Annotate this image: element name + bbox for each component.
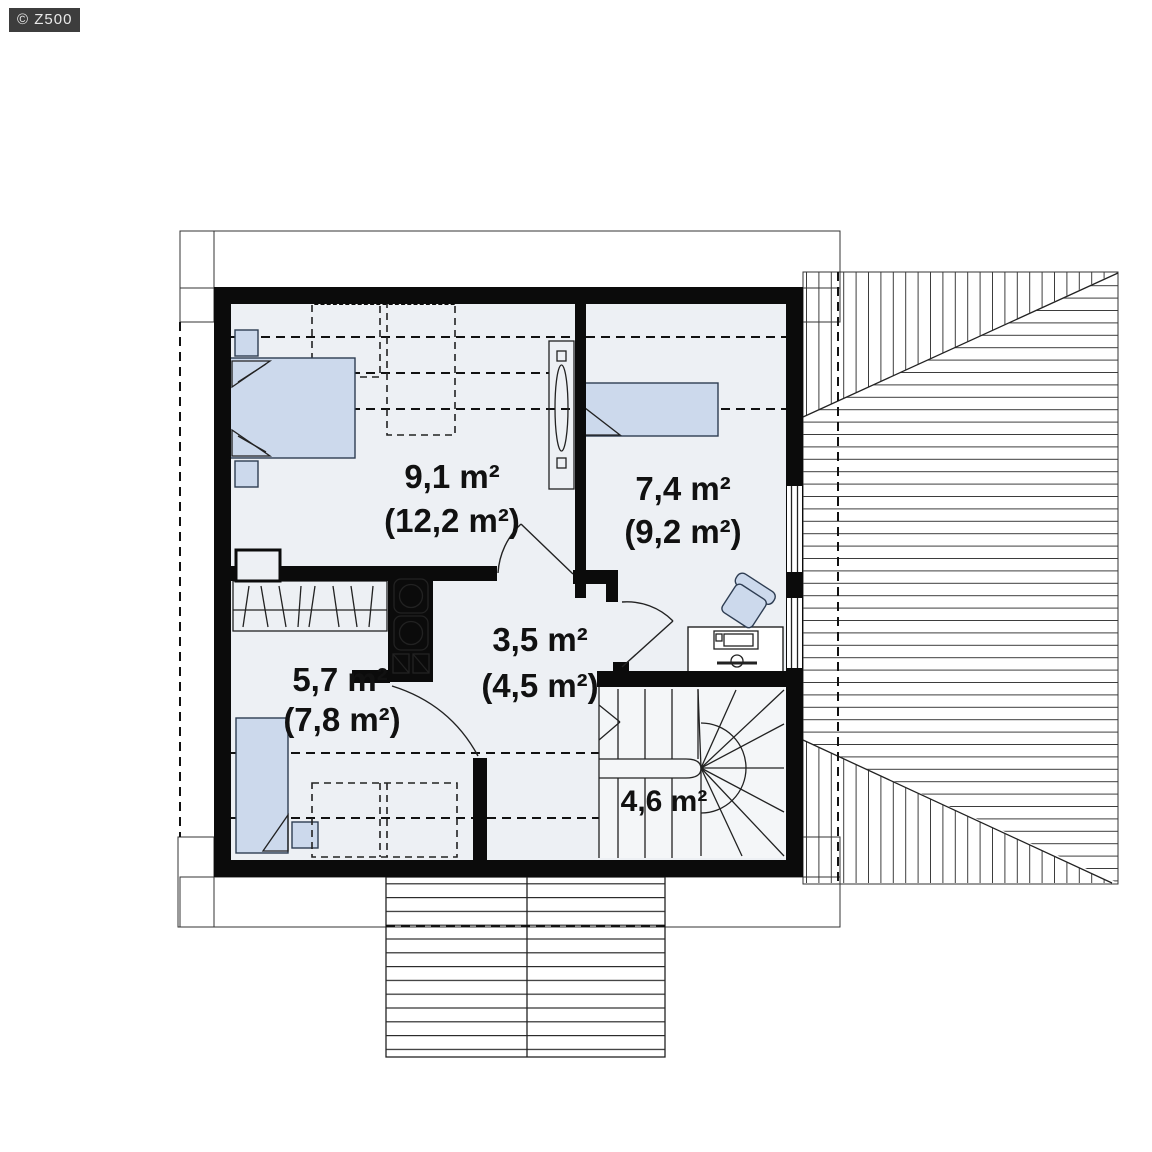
- eave-band-left-upper: [180, 231, 214, 322]
- partition-bedrooms: [575, 304, 586, 598]
- label-staircase-area: 4,6 m²: [621, 785, 708, 818]
- stair-well: [599, 687, 786, 858]
- chimney-block: [388, 568, 433, 682]
- eave-band-left-lower: [178, 837, 214, 927]
- nightstand: [235, 330, 258, 356]
- nightstand: [292, 822, 318, 848]
- label-bedroom-2-area-secondary: (9,2 m²): [624, 513, 741, 550]
- staircase: [599, 687, 786, 858]
- label-bedroom-2-area: 7,4 m²: [635, 470, 730, 507]
- partition-bedroom-3: [473, 758, 487, 860]
- door-hinge-block: [613, 662, 629, 676]
- window-bedroom-2: [787, 486, 802, 572]
- window-staircase: [787, 598, 802, 668]
- terrace: [386, 877, 665, 1057]
- label-bedroom-3-area: 5,7 m²: [292, 661, 387, 698]
- outer-wall-right: [786, 287, 803, 877]
- label-bedroom-1-area: 9,1 m²: [404, 458, 499, 495]
- right-roof-plane: [803, 272, 1118, 884]
- watermark-badge: © Z500: [9, 8, 80, 32]
- floor-plan-drawing: 9,1 m² (12,2 m²) 7,4 m² (9,2 m²) 3,5 m² …: [0, 0, 1152, 1152]
- outer-wall-top: [214, 287, 803, 304]
- eave-band-top: [180, 231, 840, 288]
- floor-plan-page: 9,1 m² (12,2 m²) 7,4 m² (9,2 m²) 3,5 m² …: [0, 0, 1152, 1152]
- label-bedroom-3-area-secondary: (7,8 m²): [283, 701, 400, 738]
- wall-niche: [236, 550, 280, 581]
- single-bed: [236, 718, 288, 853]
- door-jamb: [606, 584, 618, 602]
- single-bed: [583, 383, 718, 436]
- outer-wall-bottom: [214, 860, 803, 877]
- label-hall-area: 3,5 m²: [492, 621, 587, 658]
- label-hall-area-secondary: (4,5 m²): [481, 667, 598, 704]
- outer-wall-left: [214, 287, 231, 877]
- terrace-planks: [386, 877, 665, 1057]
- partition-hall-east: [573, 570, 618, 584]
- watermark-label: © Z500: [17, 11, 72, 28]
- nightstand: [235, 461, 258, 487]
- label-bedroom-1-area-secondary: (12,2 m²): [384, 502, 520, 539]
- double-bed: [230, 358, 355, 458]
